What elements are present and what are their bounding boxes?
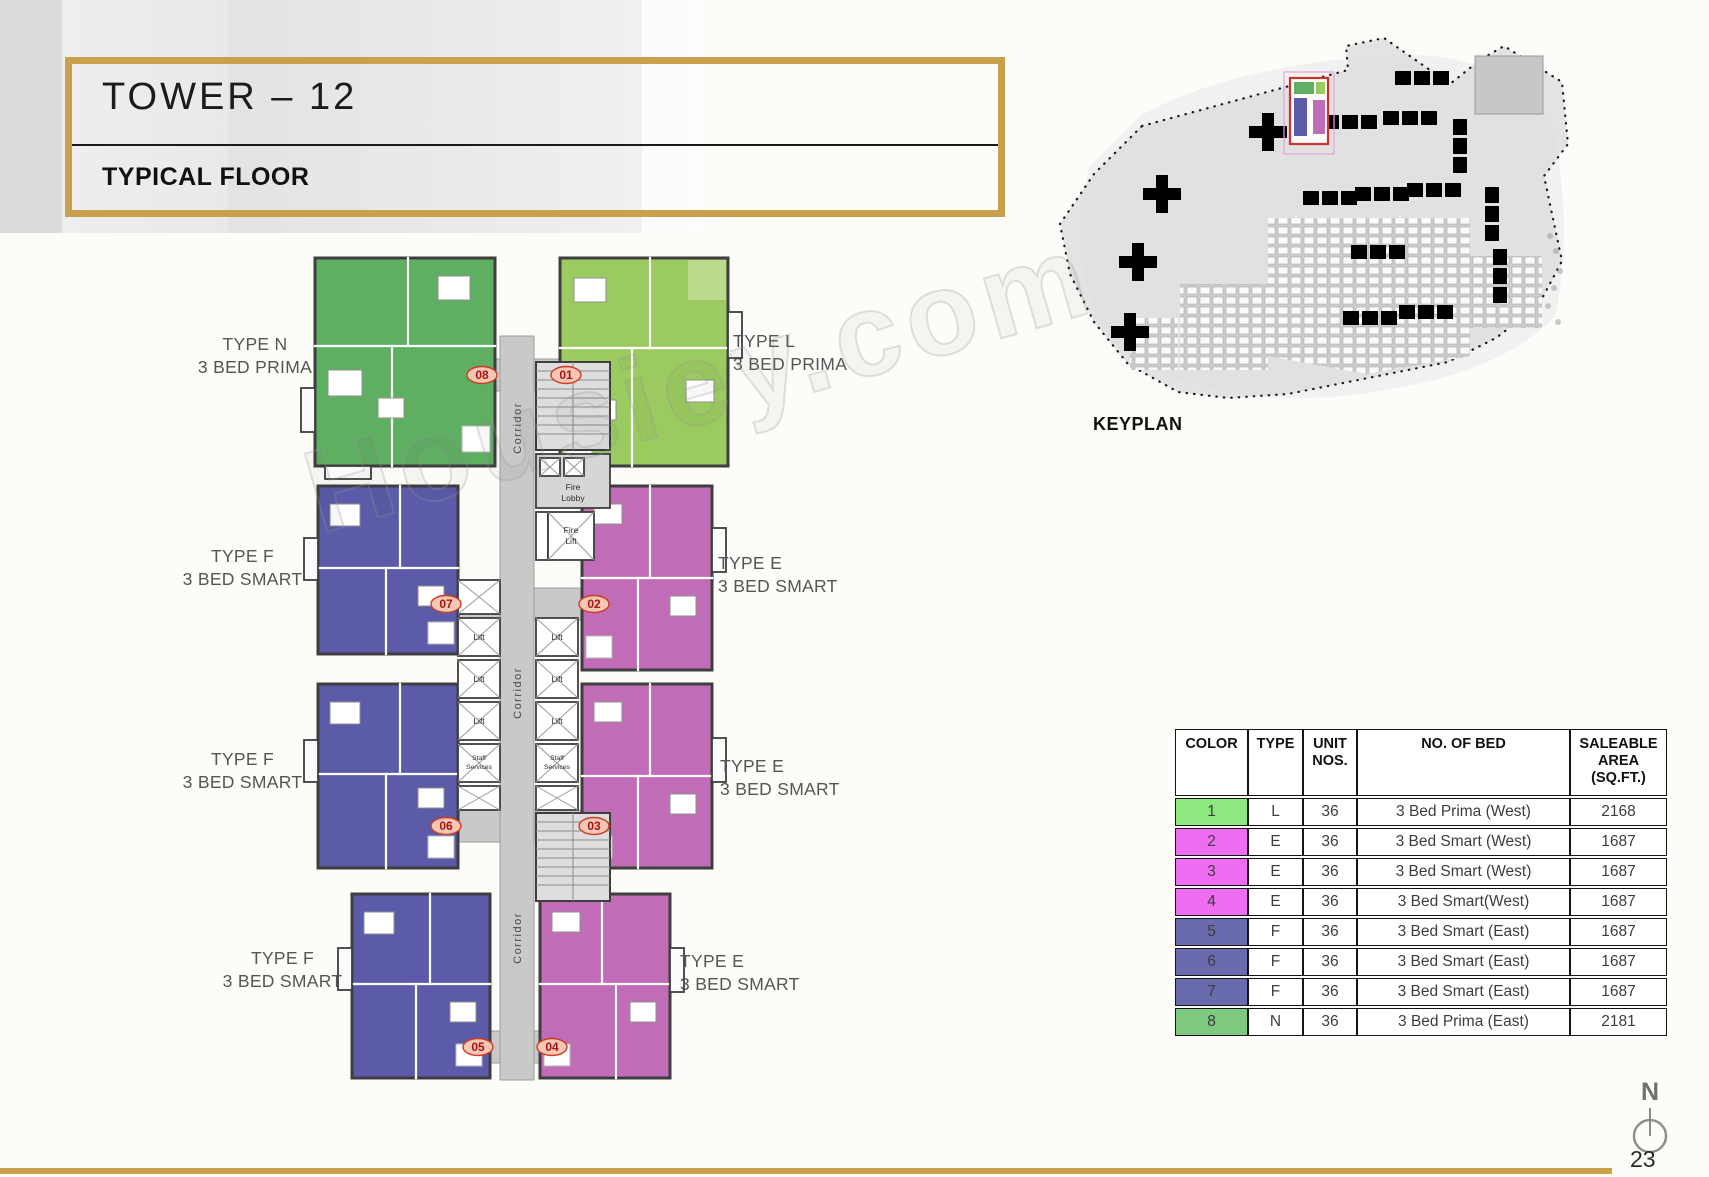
staff-services-label-1: Staff — [550, 755, 564, 762]
legend-row: 8 N 36 3 Bed Prima (East) 2181 — [1175, 1008, 1667, 1036]
unit-label-type-f-2: TYPE F 3 BED SMART — [175, 748, 310, 794]
bed-cell: 3 Bed Prima (West) — [1357, 798, 1570, 826]
legend-row: 2 E 36 3 Bed Smart (West) 1687 — [1175, 828, 1667, 856]
unit-nos-cell: 36 — [1303, 1008, 1357, 1036]
unit-type-f-1 — [304, 486, 458, 654]
svg-text:01: 01 — [559, 368, 573, 382]
legend-header-row: COLOR TYPE UNIT NOS. NO. OF BED SALEABLE… — [1175, 729, 1667, 796]
bed-cell: 3 Bed Smart (East) — [1357, 918, 1570, 946]
area-cell: 1687 — [1570, 918, 1667, 946]
type-cell: E — [1248, 858, 1303, 886]
type-cell: F — [1248, 978, 1303, 1006]
unit-bed-text: 3 BED PRIMA — [733, 353, 893, 376]
brochure-page: TOWER – 12 TYPICAL FLOOR — [0, 0, 1709, 1177]
lift-label: Lift — [473, 716, 485, 726]
unit-number-badge: 01 — [551, 367, 581, 384]
unit-nos-cell: 36 — [1303, 918, 1357, 946]
unit-type-text: TYPE E — [680, 950, 840, 973]
lift-label: Lift — [551, 632, 563, 642]
fire-lobby-label-1: Fire — [566, 482, 581, 492]
corridor-label-bottom: Corridor — [512, 912, 524, 964]
svg-text:05: 05 — [471, 1040, 485, 1054]
unit-nos-cell: 36 — [1303, 798, 1357, 826]
lift-label: Lift — [551, 674, 563, 684]
legend-row: 4 E 36 3 Bed Smart(West) 1687 — [1175, 888, 1667, 916]
area-cell: 1687 — [1570, 888, 1667, 916]
fire-lobby: Fire Lobby — [536, 454, 610, 508]
unit-nos-cell: 36 — [1303, 888, 1357, 916]
unit-number-badge: 02 — [579, 596, 609, 613]
col-header-color: COLOR — [1175, 729, 1248, 796]
type-cell: E — [1248, 888, 1303, 916]
lift-label: Lift — [551, 716, 563, 726]
unit-nos-cell: 36 — [1303, 948, 1357, 976]
unit-type-n — [301, 258, 495, 479]
unit-type-text: TYPE F — [175, 748, 310, 771]
keyplan-clubhouse — [1475, 56, 1543, 114]
title-box: TOWER – 12 TYPICAL FLOOR — [65, 57, 1005, 217]
fire-lift: Fire Lift — [536, 512, 594, 560]
unit-label-type-n: TYPE N 3 BED PRIMA — [185, 333, 325, 379]
svg-text:02: 02 — [587, 597, 601, 611]
type-cell: L — [1248, 798, 1303, 826]
area-cell: 1687 — [1570, 828, 1667, 856]
unit-type-e-1 — [582, 486, 726, 670]
page-title: TOWER – 12 — [102, 76, 357, 119]
unit-type-text: TYPE E — [720, 755, 880, 778]
unit-label-type-e-3: TYPE E 3 BED SMART — [680, 950, 840, 996]
unit-bed-text: 3 BED SMART — [175, 568, 310, 591]
unit-type-text: TYPE F — [215, 947, 350, 970]
fire-lift-label-1: Fire — [564, 525, 579, 535]
type-cell: E — [1248, 828, 1303, 856]
unit-label-type-f-3: TYPE F 3 BED SMART — [215, 947, 350, 993]
footer-gold-bar — [0, 1168, 1612, 1174]
lift-bank-right: Lift Lift Lift Staff Services — [536, 618, 578, 810]
lift-label: Lift — [473, 632, 485, 642]
unit-number-badge: 08 — [467, 367, 497, 384]
title-divider — [72, 144, 998, 146]
north-label: N — [1641, 1078, 1659, 1106]
col-header-type: TYPE — [1248, 729, 1303, 796]
area-cell: 1687 — [1570, 858, 1667, 886]
area-cell: 2181 — [1570, 1008, 1667, 1036]
corridor-label-middle: Corridor — [512, 667, 524, 719]
staff-services-label-2: Services — [544, 764, 571, 771]
unit-bed-text: 3 BED SMART — [215, 970, 350, 993]
page-subtitle: TYPICAL FLOOR — [102, 163, 309, 192]
unit-label-type-f-1: TYPE F 3 BED SMART — [175, 545, 310, 591]
unit-label-type-e-2: TYPE E 3 BED SMART — [720, 755, 880, 801]
unit-bed-text: 3 BED SMART — [680, 973, 840, 996]
unit-bed-text: 3 BED PRIMA — [185, 356, 325, 379]
unit-nos-cell: 36 — [1303, 978, 1357, 1006]
bed-cell: 3 Bed Smart (East) — [1357, 978, 1570, 1006]
unit-type-f-2 — [304, 684, 458, 868]
corridor-label-top: Corridor — [512, 402, 524, 454]
fire-lobby-label-2: Lobby — [561, 493, 585, 503]
area-cell: 1687 — [1570, 948, 1667, 976]
svg-text:04: 04 — [545, 1040, 559, 1054]
lift-bank-left: Lift Lift Lift Staff Services — [458, 580, 500, 810]
unit-label-type-e-1: TYPE E 3 BED SMART — [718, 552, 878, 598]
color-cell: 4 — [1175, 888, 1248, 916]
unit-number-badge: 05 — [463, 1039, 493, 1056]
unit-number-badge: 03 — [579, 818, 609, 835]
unit-bed-text: 3 BED SMART — [718, 575, 878, 598]
keyplan-label: KEYPLAN — [1093, 414, 1183, 435]
unit-number-badge: 04 — [537, 1039, 567, 1056]
legend-row: 7 F 36 3 Bed Smart (East) 1687 — [1175, 978, 1667, 1006]
svg-text:07: 07 — [439, 597, 453, 611]
legend-row: 1 L 36 3 Bed Prima (West) 2168 — [1175, 798, 1667, 826]
col-header-unit-nos: UNIT NOS. — [1303, 729, 1357, 796]
legend-row: 5 F 36 3 Bed Smart (East) 1687 — [1175, 918, 1667, 946]
color-cell: 7 — [1175, 978, 1248, 1006]
unit-type-text: TYPE F — [175, 545, 310, 568]
unit-number-badge: 07 — [431, 596, 461, 613]
color-cell: 6 — [1175, 948, 1248, 976]
bed-cell: 3 Bed Smart(West) — [1357, 888, 1570, 916]
page-number: 23 — [1630, 1146, 1656, 1173]
staff-services-label-2: Services — [466, 764, 493, 771]
bed-cell: 3 Bed Prima (East) — [1357, 1008, 1570, 1036]
unit-nos-cell: 36 — [1303, 828, 1357, 856]
staff-services-label-1: Staff — [472, 755, 486, 762]
svg-text:03: 03 — [587, 819, 601, 833]
col-header-saleable-area: SALEABLE AREA (SQ.FT.) — [1570, 729, 1667, 796]
unit-bed-text: 3 BED SMART — [175, 771, 310, 794]
area-cell: 1687 — [1570, 978, 1667, 1006]
type-cell: F — [1248, 918, 1303, 946]
unit-bed-text: 3 BED SMART — [720, 778, 880, 801]
unit-label-type-l: TYPE L 3 BED PRIMA — [733, 330, 893, 376]
lift-label: Lift — [473, 674, 485, 684]
svg-text:06: 06 — [439, 819, 453, 833]
color-cell: 8 — [1175, 1008, 1248, 1036]
unit-type-text: TYPE E — [718, 552, 878, 575]
area-cell: 2168 — [1570, 798, 1667, 826]
keyplan-highlighted-tower — [1284, 72, 1334, 154]
legend-row: 3 E 36 3 Bed Smart (West) 1687 — [1175, 858, 1667, 886]
unit-type-text: TYPE N — [185, 333, 325, 356]
svg-text:08: 08 — [475, 368, 489, 382]
color-cell: 3 — [1175, 858, 1248, 886]
type-cell: N — [1248, 1008, 1303, 1036]
color-cell: 5 — [1175, 918, 1248, 946]
unit-l-terrace — [688, 260, 726, 300]
bed-cell: 3 Bed Smart (East) — [1357, 948, 1570, 976]
color-cell: 2 — [1175, 828, 1248, 856]
col-header-no-of-bed: NO. OF BED — [1357, 729, 1570, 796]
bed-cell: 3 Bed Smart (West) — [1357, 828, 1570, 856]
legend-row: 6 F 36 3 Bed Smart (East) 1687 — [1175, 948, 1667, 976]
bed-cell: 3 Bed Smart (West) — [1357, 858, 1570, 886]
unit-nos-cell: 36 — [1303, 858, 1357, 886]
color-cell: 1 — [1175, 798, 1248, 826]
unit-type-text: TYPE L — [733, 330, 893, 353]
unit-number-badge: 06 — [431, 818, 461, 835]
type-cell: F — [1248, 948, 1303, 976]
legend-table: COLOR TYPE UNIT NOS. NO. OF BED SALEABLE… — [1175, 727, 1667, 1038]
keyplan-map — [1030, 26, 1575, 411]
fire-lift-label-2: Lift — [565, 536, 577, 546]
